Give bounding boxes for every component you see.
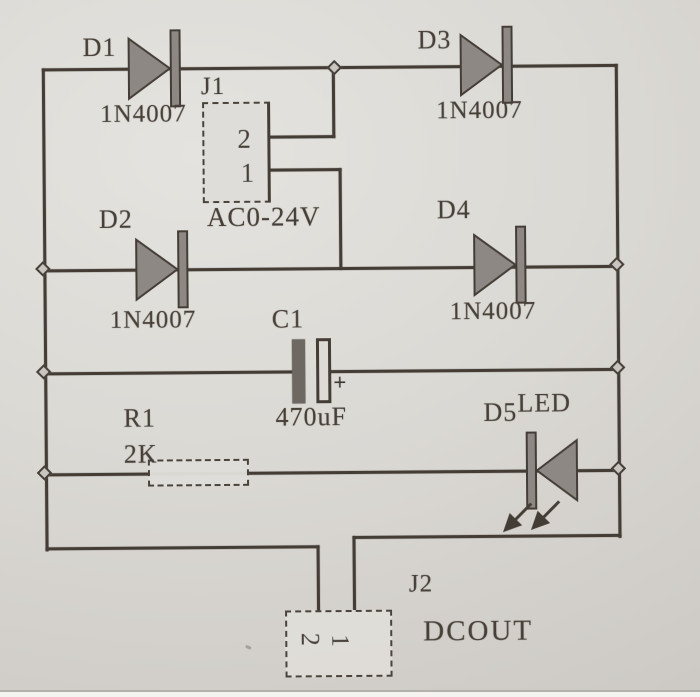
capacitor-polarity-mark: + (333, 371, 346, 394)
diode-d2-symbol (133, 227, 192, 311)
junction-dot (327, 60, 343, 76)
diode-d1-symbol (125, 26, 184, 110)
j1-ref-label: J1 (201, 74, 225, 99)
junction-dot (609, 257, 625, 273)
wire-j1-pin1-h (271, 168, 342, 172)
connector-j1-body: 2 1 (202, 102, 271, 204)
junction-dot (37, 465, 53, 481)
wire-j1-pin1-v (339, 168, 343, 270)
wire-cap-row-right (330, 368, 620, 373)
scanned-schematic-page: + 2 1 2 1 D1 1N4007 D3 1N4007 J1 AC0-24V… (0, 0, 700, 697)
connector-j2-body: 2 1 (285, 610, 393, 678)
diode-d3-symbol (457, 23, 516, 107)
bridge-rectifier-schematic: + 2 1 2 1 D1 1N4007 D3 1N4007 J1 AC0-24V… (0, 0, 700, 697)
wire-cap-row-left (44, 370, 292, 375)
d5-type-label: LED (517, 390, 571, 416)
wire-j1-pin2-v (332, 66, 336, 138)
d1-part-label: 1N4007 (100, 101, 187, 127)
wire-middle-bus (43, 265, 619, 273)
j1-note-label: AC0-24V (207, 203, 321, 231)
j1-pin-1-label: 1 (241, 160, 255, 187)
junction-dot (36, 364, 52, 380)
capacitor-plate-positive (316, 338, 332, 403)
junction-dot (611, 461, 627, 477)
wire-bottom-left-h (46, 545, 320, 550)
wire-bottom-right-h (352, 534, 621, 539)
capacitor-plate-negative (292, 339, 306, 403)
d3-part-label: 1N4007 (436, 98, 523, 124)
c1-value-label: 470uF (275, 404, 347, 431)
junction-dot (35, 261, 51, 277)
j2-pin-1-label: 1 (327, 634, 352, 647)
j2-ref-label: J2 (409, 571, 433, 596)
r1-ref-label: R1 (123, 406, 156, 432)
j2-note-label: DCOUT (423, 617, 533, 647)
scan-speck (245, 645, 252, 650)
d2-ref-label: D2 (99, 207, 133, 233)
wire-j1-pin2-h (270, 135, 335, 139)
j2-pin-2-label: 2 (297, 633, 323, 646)
led-arrows-icon (499, 498, 567, 537)
d4-part-label: 1N4007 (450, 299, 537, 325)
wire-bottom-right-v (352, 536, 356, 612)
wire-bottom-left-v (317, 545, 321, 612)
junction-dot (610, 360, 626, 376)
diode-d4-symbol (471, 223, 530, 307)
d4-ref-label: D4 (437, 197, 471, 223)
d1-ref-label: D1 (83, 35, 117, 61)
r1-value-label: 2K (124, 442, 158, 468)
c1-ref-label: C1 (272, 306, 305, 332)
d2-part-label: 1N4007 (110, 307, 197, 333)
paper-bottom-edge (0, 690, 700, 697)
d5-ref-label: D5 (483, 400, 517, 426)
d3-ref-label: D3 (417, 27, 451, 53)
j1-pin-2-label: 2 (237, 126, 251, 153)
resistor-r1-body (148, 459, 249, 487)
